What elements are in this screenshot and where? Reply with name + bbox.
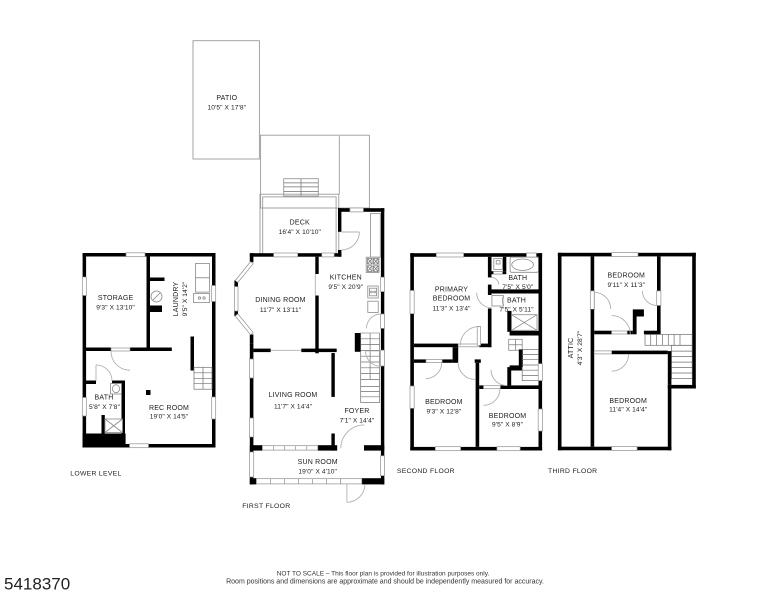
svg-text:DECK: DECK: [290, 220, 310, 227]
svg-text:11'7" X 13'11": 11'7" X 13'11": [260, 307, 302, 314]
svg-text:BEDROOM: BEDROOM: [433, 295, 471, 302]
svg-text:PRIMARY: PRIMARY: [435, 286, 468, 293]
svg-text:9'5" X 8'9": 9'5" X 8'9": [492, 421, 524, 428]
svg-text:BATH: BATH: [507, 298, 526, 305]
svg-text:16'4" X 10'10": 16'4" X 10'10": [279, 229, 322, 236]
svg-text:9'3" X 13'10": 9'3" X 13'10": [96, 304, 135, 311]
svg-text:SUN ROOM: SUN ROOM: [298, 459, 338, 466]
svg-text:9'11" X 11'3": 9'11" X 11'3": [608, 282, 646, 289]
svg-text:STORAGE: STORAGE: [98, 295, 134, 302]
svg-text:7'5" X 5'11": 7'5" X 5'11": [499, 307, 534, 314]
svg-text:BEDROOM: BEDROOM: [489, 413, 527, 420]
svg-text:7'1" X 14'4": 7'1" X 14'4": [340, 418, 375, 425]
svg-text:BATH: BATH: [508, 275, 527, 282]
svg-text:BEDROOM: BEDROOM: [609, 398, 647, 405]
svg-text:9'5" X 14'2": 9'5" X 14'2": [182, 281, 189, 316]
svg-text:9'5" X 20'9": 9'5" X 20'9": [328, 284, 363, 291]
svg-text:9'3" X 12'8": 9'3" X 12'8": [427, 408, 462, 415]
svg-text:10'5" X 17'8": 10'5" X 17'8": [208, 105, 247, 112]
svg-text:Room positions and dimensions: Room positions and dimensions are approx…: [226, 578, 544, 585]
svg-text:NOT TO SCALE – This floor plan: NOT TO SCALE – This floor plan is provid…: [277, 571, 490, 578]
svg-text:4'3" X 28'7": 4'3" X 28'7": [577, 330, 584, 365]
svg-text:THIRD FLOOR: THIRD FLOOR: [548, 468, 597, 475]
svg-text:11'4" X 14'4": 11'4" X 14'4": [609, 407, 648, 414]
svg-text:FIRST FLOOR: FIRST FLOOR: [242, 503, 290, 510]
svg-text:KITCHEN: KITCHEN: [330, 274, 362, 281]
svg-text:SECOND FLOOR: SECOND FLOOR: [397, 468, 455, 475]
svg-text:LIVING ROOM: LIVING ROOM: [269, 392, 318, 399]
svg-text:FOYER: FOYER: [344, 408, 369, 415]
svg-text:7'5" X 5'0": 7'5" X 5'0": [502, 284, 534, 291]
svg-text:19'0" X 4'10": 19'0" X 4'10": [298, 468, 337, 475]
svg-text:REC ROOM: REC ROOM: [149, 405, 189, 412]
svg-text:DINING ROOM: DINING ROOM: [255, 297, 305, 304]
svg-text:BATH: BATH: [95, 395, 114, 402]
svg-text:ATTIC: ATTIC: [568, 338, 575, 359]
svg-text:11'7" X 14'4": 11'7" X 14'4": [274, 404, 313, 411]
svg-text:PATIO: PATIO: [216, 95, 237, 102]
svg-text:19'0" X 14'5": 19'0" X 14'5": [150, 414, 189, 421]
svg-text:5418370: 5418370: [4, 575, 70, 594]
svg-text:LOWER LEVEL: LOWER LEVEL: [70, 470, 121, 477]
svg-text:LAUNDRY: LAUNDRY: [173, 282, 180, 317]
svg-text:11'3" X 13'4": 11'3" X 13'4": [432, 306, 471, 313]
svg-text:BEDROOM: BEDROOM: [425, 399, 463, 406]
svg-text:5'8" X 7'8": 5'8" X 7'8": [89, 404, 121, 411]
svg-text:BEDROOM: BEDROOM: [608, 272, 646, 279]
